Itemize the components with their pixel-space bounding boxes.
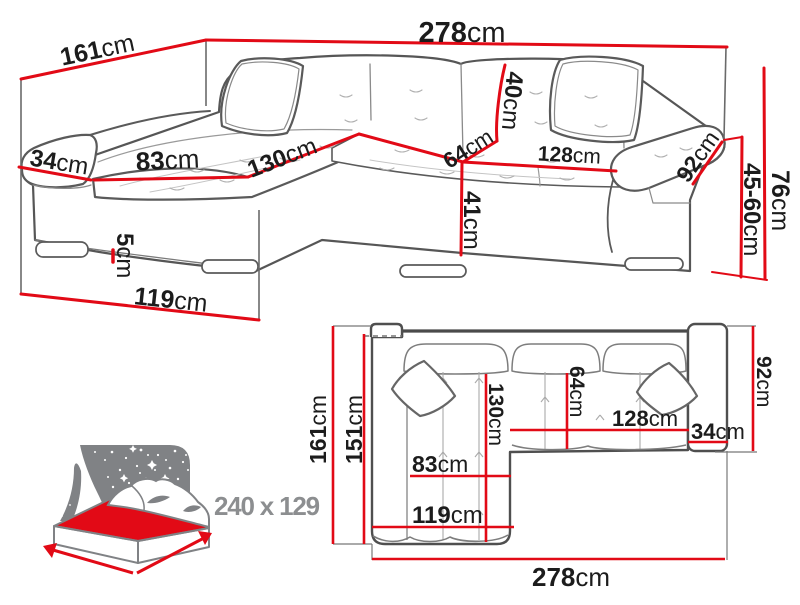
svg-text:151cm: 151cm bbox=[341, 395, 367, 464]
svg-text:5cm: 5cm bbox=[111, 233, 138, 278]
svg-text:45-60cm: 45-60cm bbox=[738, 163, 765, 256]
svg-text:41cm: 41cm bbox=[458, 191, 485, 250]
svg-text:83cm: 83cm bbox=[412, 451, 468, 477]
svg-text:240 x 129: 240 x 129 bbox=[214, 491, 320, 521]
svg-text:130cm: 130cm bbox=[484, 383, 507, 446]
svg-text:128cm: 128cm bbox=[537, 142, 601, 168]
svg-text:278cm: 278cm bbox=[418, 17, 505, 49]
svg-text:119cm: 119cm bbox=[412, 502, 483, 529]
svg-text:76cm: 76cm bbox=[766, 170, 794, 231]
svg-text:34cm: 34cm bbox=[691, 419, 745, 444]
svg-text:161cm: 161cm bbox=[305, 395, 331, 464]
svg-text:92cm: 92cm bbox=[752, 356, 775, 407]
svg-text:64cm: 64cm bbox=[565, 366, 588, 417]
svg-text:278cm: 278cm bbox=[532, 562, 610, 592]
svg-text:128cm: 128cm bbox=[612, 406, 678, 431]
svg-text:83cm: 83cm bbox=[135, 143, 200, 176]
svg-text:40cm: 40cm bbox=[496, 70, 528, 131]
